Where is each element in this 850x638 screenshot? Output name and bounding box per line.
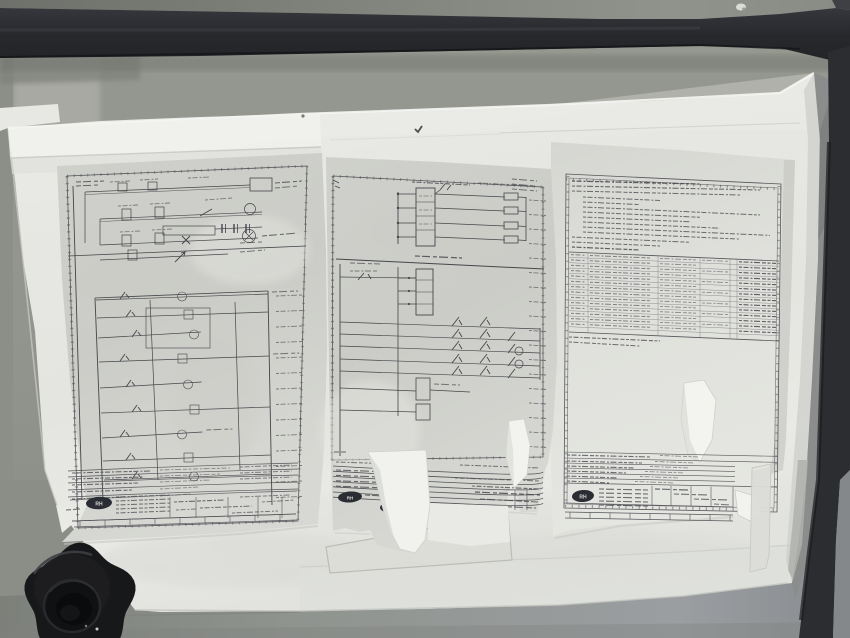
svg-text:RH: RH: [95, 502, 103, 508]
svg-text:RH: RH: [347, 496, 354, 501]
svg-text:RH: RH: [579, 495, 587, 501]
